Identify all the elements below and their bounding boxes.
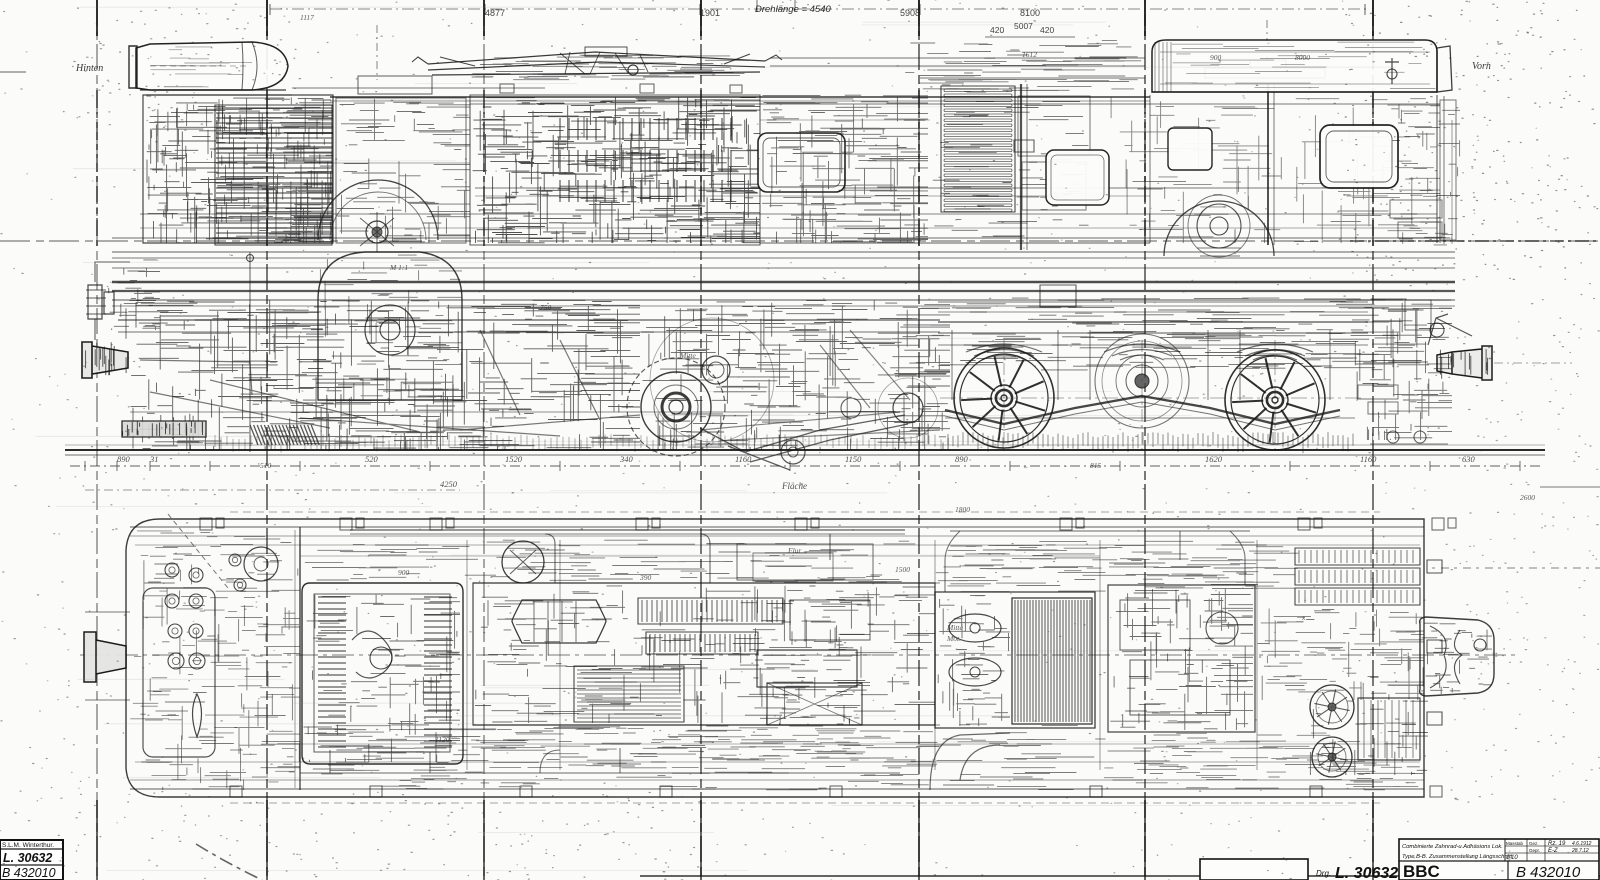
svg-text:1117: 1117 <box>300 13 314 22</box>
svg-text:Drehlänge = 4540: Drehlänge = 4540 <box>755 4 832 15</box>
svg-text:340: 340 <box>619 454 634 464</box>
svg-text:Mitte: Mitte <box>946 623 963 632</box>
svg-text:1800: 1800 <box>955 505 970 514</box>
svg-text:1612: 1612 <box>1022 50 1037 59</box>
svg-text:BBC: BBC <box>1403 862 1440 880</box>
svg-text:8100: 8100 <box>1020 8 1040 18</box>
svg-text:630: 630 <box>1462 454 1476 464</box>
svg-text:1160: 1160 <box>735 454 752 464</box>
svg-text:1500: 1500 <box>895 565 910 574</box>
svg-text:B 432010: B 432010 <box>2 866 56 880</box>
svg-text:520: 520 <box>365 454 379 464</box>
svg-text:L. 30632: L. 30632 <box>1335 865 1398 880</box>
svg-text:Gez.: Gez. <box>1529 841 1539 846</box>
svg-text:x: x <box>1301 613 1306 622</box>
svg-text:4877: 4877 <box>485 8 505 18</box>
svg-text:750: 750 <box>540 303 552 312</box>
svg-text:1150: 1150 <box>845 454 862 464</box>
svg-text:Drg.: Drg. <box>1316 869 1331 878</box>
svg-text:Mitte: Mitte <box>679 351 696 360</box>
svg-text:890: 890 <box>955 454 969 464</box>
svg-text:Type B-B. Zusammenstellung Län: Type B-B. Zusammenstellung Längsschnitt <box>1402 854 1512 860</box>
svg-text:Rz. 19: Rz. 19 <box>1548 841 1566 847</box>
svg-text:420: 420 <box>1040 25 1054 35</box>
svg-text:S.L.M. Winterthur.: S.L.M. Winterthur. <box>2 842 54 849</box>
svg-text:Fläche: Fläche <box>781 481 807 491</box>
svg-text:Hinten: Hinten <box>75 63 103 74</box>
svg-text:Combinierte Zahnrad-u.Adhäsion: Combinierte Zahnrad-u.Adhäsions Lok. <box>1402 844 1503 850</box>
svg-text:420: 420 <box>990 25 1004 35</box>
svg-text:1620: 1620 <box>1205 454 1223 464</box>
svg-text:1901: 1901 <box>700 8 720 18</box>
svg-text:890: 890 <box>117 454 131 464</box>
svg-text:M 1:1: M 1:1 <box>389 263 408 272</box>
svg-text:1:10: 1:10 <box>1506 855 1518 861</box>
svg-text:L. 30632: L. 30632 <box>3 851 52 865</box>
svg-text:2600: 2600 <box>1520 493 1535 502</box>
svg-text:Gepr.: Gepr. <box>1529 848 1540 853</box>
svg-text:1520: 1520 <box>505 454 523 464</box>
svg-text:E-Z: E-Z <box>1548 848 1558 854</box>
svg-text:28.7.12: 28.7.12 <box>1571 848 1589 854</box>
svg-text:B 432010: B 432010 <box>1516 864 1581 880</box>
svg-text:1120: 1120 <box>435 735 450 744</box>
svg-text:1160: 1160 <box>1360 454 1377 464</box>
svg-text:4.6.1912: 4.6.1912 <box>1572 841 1592 847</box>
svg-text:510: 510 <box>260 461 272 470</box>
svg-text:Masstab: Masstab <box>1506 841 1524 846</box>
svg-text:4250: 4250 <box>440 479 458 489</box>
svg-text:5908: 5908 <box>900 8 920 18</box>
svg-text:Flur: Flur <box>787 546 801 555</box>
svg-text:390: 390 <box>639 573 652 582</box>
svg-text:Mot.: Mot. <box>946 634 961 643</box>
svg-text:815: 815 <box>1090 461 1102 470</box>
svg-text:8000: 8000 <box>1295 53 1310 62</box>
svg-text:900: 900 <box>398 568 410 577</box>
